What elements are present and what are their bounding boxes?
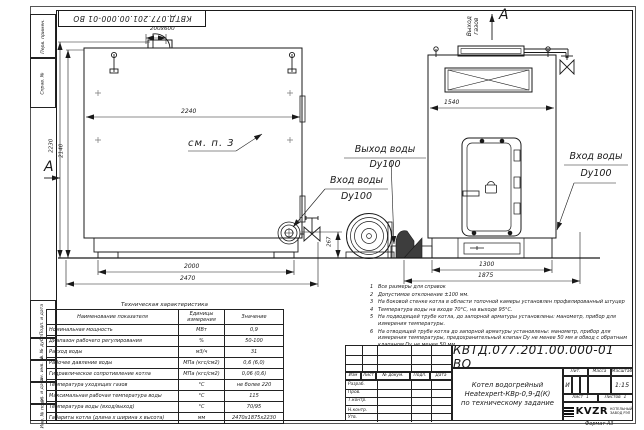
row-razrab: Разраб. [348,383,365,387]
note-item: 4Температура воды на входе 70°С, на выхо… [370,307,634,314]
dim-2240-label: 2240 [181,109,196,115]
spec-table: Наименование показателя Единицы измерени… [46,309,284,424]
dim-2140-label: 2140 [59,144,65,158]
sheets-total-cell: Листов 1 [598,394,633,402]
revision-grid [345,345,452,372]
note-item: 5На подводящей трубе котла, до запорной … [370,314,634,327]
top-inverted-stamp: КВТД.077.201.00.000-01 ВО [58,10,206,27]
water-in-right-dy100: Dy100 [564,169,628,179]
lit-value-cell: И [563,376,572,394]
sheet-number-cell: Лист 1 [563,394,598,402]
dim-1875-label: 1875 [478,273,493,279]
dim-opening-label: 200x600 [150,27,175,33]
spec-header-row: Наименование показателя Единицы измерени… [47,310,284,325]
spec-row: Температура воды (вход/выход)°С70/95 [47,402,284,413]
kvzr-bars-icon [564,407,574,417]
dim-2000-label: 2000 [184,264,199,270]
spec-table-title: Техническая характеристика [46,302,283,308]
scale-label-cell: Масштаб [611,368,633,376]
section-a-label-left: А [44,160,54,174]
spec-row: Расход водым3/ч31 [47,347,284,358]
water-out-dy100: Dy100 [344,160,426,170]
dim-1540-label: 1540 [444,100,459,106]
spec-row: Рабочее давление водыМПа (кгс/см2)0,6 (6… [47,358,284,369]
frame-box-sprav-no: Справ. № [30,58,56,108]
flue-gas-exit-label: Выход газов [458,4,488,48]
dim-2470-label: 2470 [180,276,195,282]
company-logo: KVZR КОТЕЛЬНЫЙ ЗАВОД РЭП [564,406,633,417]
signature-rows: Разраб. Пров. Т.контр. Н.контр. Утв. [345,380,452,421]
col-ndocum: № докум. [376,372,410,380]
note-item: 3На боковой стенке котла в области топоч… [370,299,634,306]
drawing-sheet: Перв. примен. Справ. № Подп. и дата Инв.… [0,0,644,430]
document-designation: КВТД.077.201.00.000-01 ВО [452,345,633,368]
mass-label-cell: Масса [588,368,611,376]
col-list: Лист [361,372,376,380]
col-podp: Подп. [410,372,430,380]
water-in-left-dy100: Dy100 [325,192,388,202]
lit-empty-cell-2 [580,376,588,394]
note-item: 2Допустимое отклонение ±100 мм. [370,292,634,299]
note-item: 1Все размеры для справок [370,284,634,291]
mass-value-cell [588,376,611,394]
water-in-right-callout: Вход воды [564,152,628,162]
col-data: Дата [430,372,452,380]
spec-row: Максимальная рабочая температура воды°С1… [47,391,284,402]
spec-row: Номинальная мощностьМВт0,9 [47,325,284,336]
spec-row: Диапазон рабочего регулирования%50-100 [47,336,284,347]
water-in-left-callout: Вход воды [325,176,388,186]
spec-row: Габариты котла (длина х ширина х высота)… [47,413,284,424]
row-prov: Пров. [348,391,361,395]
document-name: Котел водогрейный Heatexpert-КВр-0,9-Д(К… [452,368,563,421]
spec-row: Температура уходящих газов°Сне более 220 [47,380,284,391]
lit-label-cell: Лит. [563,368,588,376]
row-tkontr: Т.контр. [348,399,367,403]
frame-box-perv-primen: Перв. примен. [30,14,56,58]
water-out-callout: Выход воды [344,145,426,155]
scale-value-cell: 1:15 [611,376,633,394]
view-a-label-right: А [499,8,509,22]
dim-1300-label: 1300 [479,262,494,268]
row-nkontr: Н.контр. [348,409,367,413]
see-note-3-label: см. п. 3 [188,139,235,149]
spec-table-block: Техническая характеристика Наименование … [46,302,283,424]
lit-empty-cell-1 [572,376,580,394]
dim-2230-label: 2230 [49,139,55,153]
company-cell: KVZR КОТЕЛЬНЫЙ ЗАВОД РЭП [563,402,633,421]
spec-row: Гидравлическое сопротивление котлаМПа (к… [47,369,284,380]
row-utv: Утв. [348,416,357,420]
format-note: Формат А3 [585,422,613,427]
dim-267-label: 267 [327,237,332,247]
col-izm: Изм [345,372,361,380]
